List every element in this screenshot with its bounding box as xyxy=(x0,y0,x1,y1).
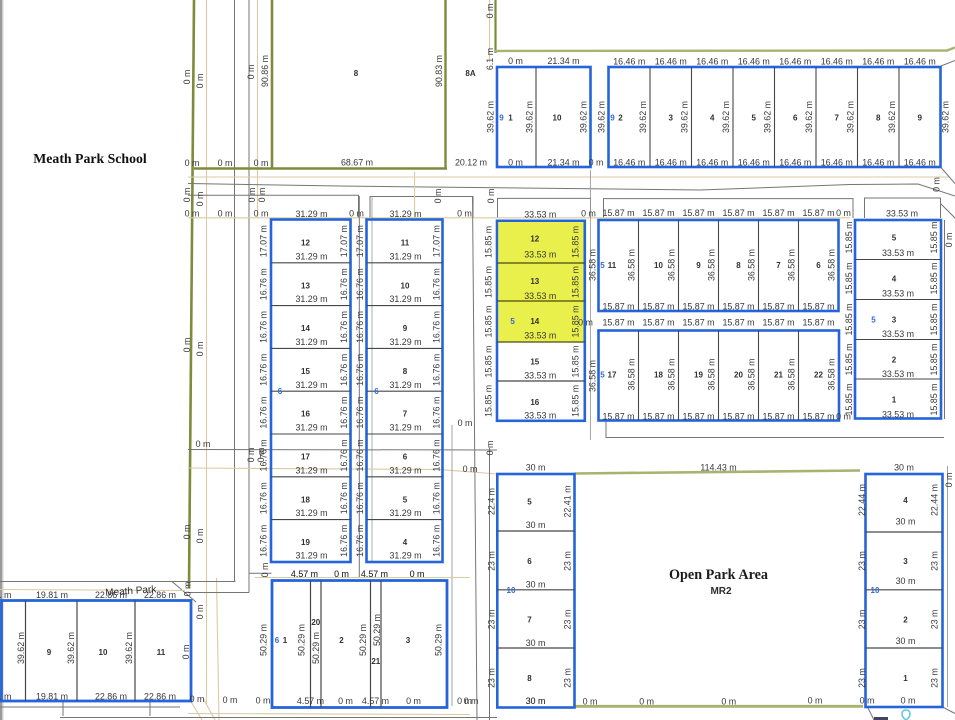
svg-text:15.85 m: 15.85 m xyxy=(844,262,854,294)
svg-text:15.85 m: 15.85 m xyxy=(929,383,939,415)
svg-text:16.46 m: 16.46 m xyxy=(738,57,770,67)
svg-text:15.87 m: 15.87 m xyxy=(802,302,834,312)
svg-text:6.1 m: 6.1 m xyxy=(485,48,495,70)
svg-text:10: 10 xyxy=(99,648,108,657)
svg-text:0 m: 0 m xyxy=(457,209,472,219)
svg-text:0 m: 0 m xyxy=(182,525,192,540)
svg-text:0 m: 0 m xyxy=(486,189,496,204)
svg-text:16.46 m: 16.46 m xyxy=(779,57,811,67)
svg-text:50.29 m: 50.29 m xyxy=(297,624,307,656)
svg-text:15.87 m: 15.87 m xyxy=(602,318,634,328)
svg-text:16.76 m: 16.76 m xyxy=(432,268,442,300)
svg-text:1: 1 xyxy=(283,636,288,645)
svg-text:Meath Park School: Meath Park School xyxy=(33,151,147,166)
svg-text:21: 21 xyxy=(774,371,783,380)
svg-text:31.29 m: 31.29 m xyxy=(295,380,327,390)
svg-text:20.12 m: 20.12 m xyxy=(455,158,487,168)
svg-text:7: 7 xyxy=(403,410,408,419)
svg-text:18: 18 xyxy=(654,371,663,380)
svg-text:15.87 m: 15.87 m xyxy=(642,208,674,218)
svg-text:15.87 m: 15.87 m xyxy=(602,412,634,422)
svg-text:31.29 m: 31.29 m xyxy=(389,337,421,347)
svg-text:36.58 m: 36.58 m xyxy=(827,358,837,390)
svg-text:0 m: 0 m xyxy=(246,448,256,463)
svg-text:0 m: 0 m xyxy=(256,696,271,706)
svg-text:6: 6 xyxy=(816,261,821,270)
svg-text:50.29 m: 50.29 m xyxy=(311,632,321,664)
svg-text:8: 8 xyxy=(736,261,741,270)
svg-text:14: 14 xyxy=(530,317,539,326)
svg-text:13: 13 xyxy=(530,277,539,286)
svg-text:0 m: 0 m xyxy=(257,188,267,203)
svg-text:10: 10 xyxy=(553,114,562,123)
svg-text:0 m: 0 m xyxy=(195,529,205,544)
svg-text:11: 11 xyxy=(608,261,617,270)
svg-text:39.62 m: 39.62 m xyxy=(66,632,76,664)
svg-text:0 m: 0 m xyxy=(195,192,205,207)
svg-text:8: 8 xyxy=(354,69,359,78)
svg-text:0 m: 0 m xyxy=(463,464,478,474)
svg-text:0 m: 0 m xyxy=(508,158,523,168)
svg-text:0 m: 0 m xyxy=(254,209,269,219)
svg-text:22.86 m: 22.86 m xyxy=(144,692,176,702)
svg-text:15.87 m: 15.87 m xyxy=(682,302,714,312)
svg-text:19: 19 xyxy=(694,371,703,380)
svg-text:30 m: 30 m xyxy=(526,638,546,648)
svg-text:33.53 m: 33.53 m xyxy=(882,369,914,379)
svg-text:23 m: 23 m xyxy=(563,551,573,571)
svg-text:30 m: 30 m xyxy=(896,636,916,646)
svg-text:0 m: 0 m xyxy=(721,697,736,707)
svg-text:MR2: MR2 xyxy=(710,586,732,597)
svg-text:30 m: 30 m xyxy=(526,580,546,590)
svg-text:15.85 m: 15.85 m xyxy=(484,305,494,337)
svg-text:22.86 m: 22.86 m xyxy=(95,590,127,600)
svg-text:15.87 m: 15.87 m xyxy=(762,318,794,328)
svg-text:0 m: 0 m xyxy=(808,696,823,706)
svg-text:1 m: 1 m xyxy=(0,590,11,600)
svg-text:21.34 m: 21.34 m xyxy=(547,158,579,168)
svg-text:31.29 m: 31.29 m xyxy=(389,551,421,561)
svg-text:15.87 m: 15.87 m xyxy=(722,412,754,422)
svg-text:16.46 m: 16.46 m xyxy=(696,57,728,67)
svg-text:15.85 m: 15.85 m xyxy=(844,221,854,253)
svg-text:0 m: 0 m xyxy=(195,342,205,357)
svg-text:0 m: 0 m xyxy=(578,318,593,328)
svg-text:15.87 m: 15.87 m xyxy=(762,302,794,312)
svg-text:15.87 m: 15.87 m xyxy=(802,412,834,422)
svg-text:16.76 m: 16.76 m xyxy=(355,354,365,386)
svg-text:16: 16 xyxy=(301,410,310,419)
svg-text:36.58 m: 36.58 m xyxy=(747,249,757,281)
svg-text:17.07 m: 17.07 m xyxy=(259,225,269,257)
svg-text:23 m: 23 m xyxy=(930,551,940,571)
svg-text:39.62 m: 39.62 m xyxy=(124,632,134,664)
svg-text:6: 6 xyxy=(793,114,798,123)
svg-text:15.85 m: 15.85 m xyxy=(484,226,494,258)
svg-text:50.29 m: 50.29 m xyxy=(372,614,382,646)
svg-text:0 m: 0 m xyxy=(349,209,364,219)
svg-text:0 m: 0 m xyxy=(182,188,192,203)
svg-text:16.76 m: 16.76 m xyxy=(432,397,442,429)
svg-text:39.62 m: 39.62 m xyxy=(941,101,951,133)
svg-text:0 m: 0 m xyxy=(485,441,495,456)
svg-text:31.29 m: 31.29 m xyxy=(389,465,421,475)
svg-text:15.87 m: 15.87 m xyxy=(602,208,634,218)
svg-text:39.62 m: 39.62 m xyxy=(846,101,856,133)
svg-text:17.07 m: 17.07 m xyxy=(432,225,442,257)
svg-text:39.62 m: 39.62 m xyxy=(721,101,731,133)
svg-text:21: 21 xyxy=(371,657,380,666)
svg-text:22.86 m: 22.86 m xyxy=(144,590,176,600)
svg-text:36.58 m: 36.58 m xyxy=(747,358,757,390)
svg-text:15.87 m: 15.87 m xyxy=(682,318,714,328)
svg-text:0 m: 0 m xyxy=(836,208,851,218)
svg-text:0 m: 0 m xyxy=(195,605,205,620)
svg-text:0 m: 0 m xyxy=(185,158,200,168)
svg-text:33.53 m: 33.53 m xyxy=(882,248,914,258)
svg-text:36.58 m: 36.58 m xyxy=(667,249,677,281)
svg-text:19.81 m: 19.81 m xyxy=(36,692,68,702)
svg-text:9: 9 xyxy=(47,648,52,657)
svg-text:20: 20 xyxy=(311,618,320,627)
svg-text:17.07 m: 17.07 m xyxy=(355,225,365,257)
svg-text:3: 3 xyxy=(892,316,897,325)
svg-text:4.57 m: 4.57 m xyxy=(362,696,389,706)
svg-text:16.76 m: 16.76 m xyxy=(355,397,365,429)
svg-text:16.46 m: 16.46 m xyxy=(821,158,853,168)
svg-text:15.87 m: 15.87 m xyxy=(642,318,674,328)
svg-text:23 m: 23 m xyxy=(930,668,940,688)
svg-text:23 m: 23 m xyxy=(487,551,497,571)
svg-text:33.53 m: 33.53 m xyxy=(524,411,556,421)
svg-text:16.76 m: 16.76 m xyxy=(339,482,349,514)
svg-text:6: 6 xyxy=(403,453,408,462)
svg-text:0 m: 0 m xyxy=(457,696,472,706)
svg-text:0 m: 0 m xyxy=(246,65,256,80)
svg-text:31.29 m: 31.29 m xyxy=(389,380,421,390)
svg-text:0 m: 0 m xyxy=(182,338,192,353)
svg-text:0 m: 0 m xyxy=(195,74,205,89)
svg-text:8A: 8A xyxy=(465,69,475,78)
svg-text:16.76 m: 16.76 m xyxy=(259,482,269,514)
svg-text:15.85 m: 15.85 m xyxy=(570,226,580,258)
svg-text:0 m: 0 m xyxy=(182,70,192,85)
svg-text:16.46 m: 16.46 m xyxy=(862,158,894,168)
svg-text:31.29 m: 31.29 m xyxy=(389,251,421,261)
svg-text:15.85 m: 15.85 m xyxy=(484,266,494,298)
svg-text:15.87 m: 15.87 m xyxy=(722,208,754,218)
svg-text:39.62 m: 39.62 m xyxy=(16,632,26,664)
svg-text:36.58 m: 36.58 m xyxy=(627,358,637,390)
svg-text:Open Park Area: Open Park Area xyxy=(669,567,768,583)
svg-text:31.29 m: 31.29 m xyxy=(295,209,327,219)
svg-text:5: 5 xyxy=(752,114,757,123)
svg-text:3: 3 xyxy=(903,557,908,566)
svg-text:39.62 m: 39.62 m xyxy=(597,101,607,133)
svg-text:31.29 m: 31.29 m xyxy=(295,508,327,518)
svg-text:19: 19 xyxy=(301,538,310,547)
svg-text:0 m: 0 m xyxy=(196,439,211,449)
svg-text:15.87 m: 15.87 m xyxy=(602,302,634,312)
svg-text:15.85 m: 15.85 m xyxy=(484,345,494,377)
svg-text:23 m: 23 m xyxy=(563,610,573,630)
svg-text:23 m: 23 m xyxy=(857,668,867,688)
svg-text:36.58 m: 36.58 m xyxy=(667,358,677,390)
svg-text:18: 18 xyxy=(301,495,310,504)
svg-text:33.53 m: 33.53 m xyxy=(524,291,556,301)
svg-text:9: 9 xyxy=(499,114,504,123)
svg-text:31.29 m: 31.29 m xyxy=(295,251,327,261)
svg-text:39.62 m: 39.62 m xyxy=(887,101,897,133)
svg-text:21.34 m: 21.34 m xyxy=(547,56,579,66)
svg-text:0 m: 0 m xyxy=(433,189,443,204)
svg-text:36.58 m: 36.58 m xyxy=(588,360,598,392)
svg-text:16.46 m: 16.46 m xyxy=(613,57,645,67)
svg-text:9: 9 xyxy=(918,114,923,123)
svg-text:23 m: 23 m xyxy=(487,610,497,630)
svg-text:15.85 m: 15.85 m xyxy=(929,303,939,335)
svg-text:33.53 m: 33.53 m xyxy=(882,409,914,419)
svg-text:22.86 m: 22.86 m xyxy=(95,692,127,702)
svg-text:4: 4 xyxy=(903,496,908,505)
svg-text:1: 1 xyxy=(892,396,897,405)
svg-text:15.85 m: 15.85 m xyxy=(484,385,494,417)
svg-text:15.85 m: 15.85 m xyxy=(844,303,854,335)
svg-text:10: 10 xyxy=(654,261,663,270)
svg-text:31.29 m: 31.29 m xyxy=(295,423,327,433)
svg-text:1: 1 xyxy=(903,674,908,683)
svg-text:0 m: 0 m xyxy=(944,473,954,488)
svg-text:33.53 m: 33.53 m xyxy=(882,289,914,299)
svg-text:23 m: 23 m xyxy=(930,610,940,630)
svg-text:36.58 m: 36.58 m xyxy=(627,249,637,281)
svg-text:5: 5 xyxy=(510,317,515,326)
svg-text:36.58 m: 36.58 m xyxy=(707,358,717,390)
svg-text:22.4 m: 22.4 m xyxy=(487,488,497,515)
svg-text:6: 6 xyxy=(275,636,280,645)
svg-text:11: 11 xyxy=(401,238,410,247)
svg-text:1 m: 1 m xyxy=(0,692,11,702)
svg-text:16.76 m: 16.76 m xyxy=(339,311,349,343)
svg-text:31.29 m: 31.29 m xyxy=(389,294,421,304)
svg-text:39.62 m: 39.62 m xyxy=(486,101,496,133)
svg-text:23 m: 23 m xyxy=(857,551,867,571)
svg-text:50.29 m: 50.29 m xyxy=(259,624,269,656)
svg-text:50.29 m: 50.29 m xyxy=(358,624,368,656)
svg-text:30 m: 30 m xyxy=(526,462,546,472)
svg-text:16.76 m: 16.76 m xyxy=(259,525,269,557)
svg-text:36.58 m: 36.58 m xyxy=(827,249,837,281)
svg-text:6: 6 xyxy=(527,557,532,566)
svg-text:15.87 m: 15.87 m xyxy=(802,318,834,328)
svg-text:14: 14 xyxy=(301,324,310,333)
svg-text:36.58 m: 36.58 m xyxy=(588,249,598,281)
svg-text:31.29 m: 31.29 m xyxy=(295,294,327,304)
svg-text:33.53 m: 33.53 m xyxy=(524,210,556,220)
svg-text:0 m: 0 m xyxy=(932,177,942,192)
svg-text:13: 13 xyxy=(301,281,310,290)
svg-text:11: 11 xyxy=(157,648,166,657)
svg-text:16.76 m: 16.76 m xyxy=(339,439,349,471)
svg-text:15.85 m: 15.85 m xyxy=(570,385,580,417)
svg-text:19.81 m: 19.81 m xyxy=(36,590,68,600)
svg-text:16.76 m: 16.76 m xyxy=(339,268,349,300)
svg-text:16.76 m: 16.76 m xyxy=(259,354,269,386)
svg-text:17: 17 xyxy=(301,453,310,462)
svg-text:23 m: 23 m xyxy=(487,668,497,688)
svg-text:6: 6 xyxy=(374,387,379,396)
svg-text:15.85 m: 15.85 m xyxy=(929,343,939,375)
svg-text:15.87 m: 15.87 m xyxy=(682,208,714,218)
svg-text:15: 15 xyxy=(530,358,539,367)
svg-text:16.76 m: 16.76 m xyxy=(432,439,442,471)
svg-text:36.58 m: 36.58 m xyxy=(787,249,797,281)
svg-text:0 m: 0 m xyxy=(338,696,353,706)
svg-text:50.29 m: 50.29 m xyxy=(434,624,444,656)
svg-text:15.87 m: 15.87 m xyxy=(642,302,674,312)
svg-text:16.46 m: 16.46 m xyxy=(862,57,894,67)
svg-text:22.44 m: 22.44 m xyxy=(930,484,940,516)
svg-text:7: 7 xyxy=(835,114,840,123)
svg-text:0 m: 0 m xyxy=(860,696,875,706)
svg-text:31.29 m: 31.29 m xyxy=(295,337,327,347)
svg-text:8: 8 xyxy=(876,114,881,123)
svg-text:8: 8 xyxy=(403,367,408,376)
svg-text:16.76 m: 16.76 m xyxy=(355,482,365,514)
svg-text:0 m: 0 m xyxy=(944,233,954,248)
svg-text:36.58 m: 36.58 m xyxy=(707,249,717,281)
svg-text:10: 10 xyxy=(871,586,880,595)
svg-text:0 m: 0 m xyxy=(256,448,266,463)
svg-text:16.46 m: 16.46 m xyxy=(655,158,687,168)
svg-text:31.29 m: 31.29 m xyxy=(389,423,421,433)
svg-text:5: 5 xyxy=(403,495,408,504)
svg-text:10: 10 xyxy=(401,281,410,290)
svg-text:15.87 m: 15.87 m xyxy=(722,318,754,328)
svg-text:0 m: 0 m xyxy=(223,695,238,705)
svg-text:2: 2 xyxy=(618,114,623,123)
svg-text:7: 7 xyxy=(527,616,532,625)
svg-text:31.29 m: 31.29 m xyxy=(295,551,327,561)
svg-text:2: 2 xyxy=(903,616,908,625)
svg-text:30 m: 30 m xyxy=(526,696,546,706)
svg-text:0 m: 0 m xyxy=(260,563,270,578)
svg-text:0 m: 0 m xyxy=(406,696,421,706)
svg-text:15.87 m: 15.87 m xyxy=(682,412,714,422)
svg-text:15.87 m: 15.87 m xyxy=(762,412,794,422)
svg-text:6: 6 xyxy=(278,387,283,396)
svg-text:16.46 m: 16.46 m xyxy=(904,158,936,168)
svg-text:16.46 m: 16.46 m xyxy=(696,158,728,168)
svg-text:30 m: 30 m xyxy=(894,462,914,472)
svg-text:0 m: 0 m xyxy=(589,158,604,168)
svg-text:15.85 m: 15.85 m xyxy=(844,343,854,375)
svg-text:0 m: 0 m xyxy=(181,645,191,660)
svg-text:39.62 m: 39.62 m xyxy=(525,101,535,133)
svg-text:0 m: 0 m xyxy=(583,697,598,707)
svg-text:15: 15 xyxy=(301,367,310,376)
svg-text:0 m: 0 m xyxy=(334,569,349,579)
svg-text:31.29 m: 31.29 m xyxy=(389,209,421,219)
svg-text:0 m: 0 m xyxy=(901,696,916,706)
svg-text:16.76 m: 16.76 m xyxy=(259,311,269,343)
svg-text:16.76 m: 16.76 m xyxy=(339,354,349,386)
svg-text:68.67 m: 68.67 m xyxy=(341,158,373,168)
svg-text:0 m: 0 m xyxy=(254,158,269,168)
svg-text:23 m: 23 m xyxy=(857,610,867,630)
svg-text:0 m: 0 m xyxy=(185,209,200,219)
svg-text:2: 2 xyxy=(892,356,897,365)
svg-text:16.76 m: 16.76 m xyxy=(355,311,365,343)
svg-text:4.57 m: 4.57 m xyxy=(297,696,324,706)
svg-text:15.85 m: 15.85 m xyxy=(929,262,939,294)
svg-text:0 m: 0 m xyxy=(218,158,233,168)
svg-text:16: 16 xyxy=(530,398,539,407)
svg-text:16.76 m: 16.76 m xyxy=(432,482,442,514)
svg-text:36.58 m: 36.58 m xyxy=(787,358,797,390)
svg-text:16.76 m: 16.76 m xyxy=(339,397,349,429)
svg-text:2: 2 xyxy=(339,636,344,645)
svg-text:15.87 m: 15.87 m xyxy=(722,302,754,312)
svg-text:16.76 m: 16.76 m xyxy=(259,397,269,429)
svg-text:16.76 m: 16.76 m xyxy=(355,268,365,300)
svg-text:0 m: 0 m xyxy=(458,418,473,428)
svg-text:15.85 m: 15.85 m xyxy=(570,345,580,377)
svg-text:7: 7 xyxy=(776,261,781,270)
svg-text:0 m: 0 m xyxy=(218,209,233,219)
svg-text:12: 12 xyxy=(301,238,310,247)
svg-text:16.76 m: 16.76 m xyxy=(432,525,442,557)
svg-text:1: 1 xyxy=(508,114,513,123)
svg-text:16.76 m: 16.76 m xyxy=(259,268,269,300)
svg-text:20: 20 xyxy=(734,371,743,380)
svg-text:16.76 m: 16.76 m xyxy=(432,354,442,386)
svg-text:4: 4 xyxy=(892,275,897,284)
svg-text:0 m: 0 m xyxy=(247,188,257,203)
svg-text:23 m: 23 m xyxy=(563,668,573,688)
svg-text:0 m: 0 m xyxy=(183,582,193,597)
svg-text:39.62 m: 39.62 m xyxy=(804,101,814,133)
svg-text:30 m: 30 m xyxy=(896,517,916,527)
svg-text:33.53 m: 33.53 m xyxy=(886,208,918,218)
svg-text:15.87 m: 15.87 m xyxy=(642,412,674,422)
svg-text:15.85 m: 15.85 m xyxy=(570,266,580,298)
svg-text:15.87 m: 15.87 m xyxy=(762,208,794,218)
svg-text:0 m: 0 m xyxy=(410,569,425,579)
svg-text:8: 8 xyxy=(527,674,532,683)
svg-text:16.76 m: 16.76 m xyxy=(355,525,365,557)
svg-text:9: 9 xyxy=(696,261,701,270)
svg-text:39.62 m: 39.62 m xyxy=(763,101,773,133)
svg-text:15.85 m: 15.85 m xyxy=(929,221,939,253)
svg-text:3: 3 xyxy=(669,114,674,123)
svg-text:39.62 m: 39.62 m xyxy=(638,101,648,133)
svg-text:16.76 m: 16.76 m xyxy=(355,439,365,471)
svg-text:16.46 m: 16.46 m xyxy=(779,158,811,168)
svg-text:33.53 m: 33.53 m xyxy=(524,331,556,341)
svg-text:10: 10 xyxy=(507,586,516,595)
svg-text:0 m: 0 m xyxy=(508,56,523,66)
svg-text:39.62 m: 39.62 m xyxy=(579,101,589,133)
svg-text:31.29 m: 31.29 m xyxy=(389,508,421,518)
svg-text:4: 4 xyxy=(710,114,715,123)
svg-text:30 m: 30 m xyxy=(896,576,916,586)
svg-text:16.46 m: 16.46 m xyxy=(904,57,936,67)
svg-text:9: 9 xyxy=(403,324,408,333)
svg-text:15.87 m: 15.87 m xyxy=(802,208,834,218)
svg-text:3: 3 xyxy=(406,636,411,645)
